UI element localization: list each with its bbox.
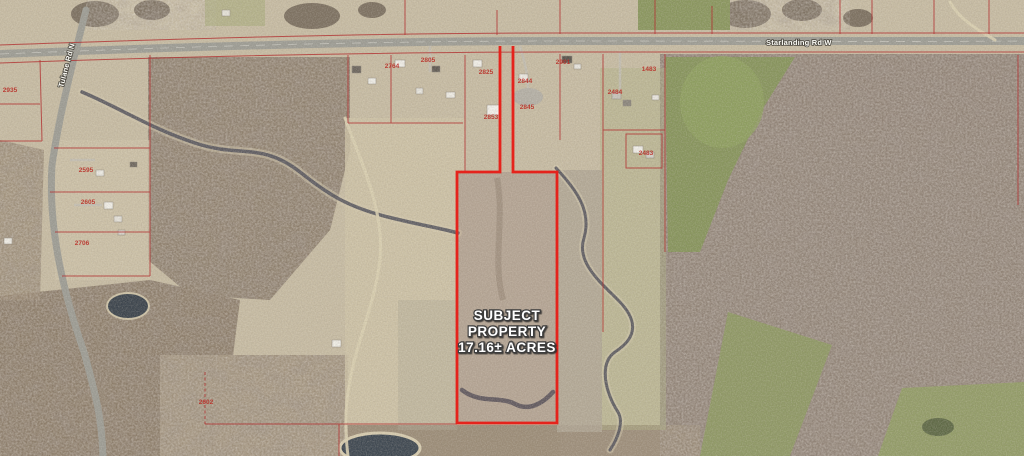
parcel-number-label: 2595 — [79, 167, 94, 174]
parcel-number-label: 2853 — [484, 114, 499, 121]
aerial-map: Starlanding Rd W Tulane Rd N SUBJECT PRO… — [0, 0, 1024, 456]
parcel-number-label: 2483 — [639, 150, 654, 157]
subject-label-line1: SUBJECT — [474, 308, 541, 323]
parcel-number-label: 2901 — [556, 59, 571, 66]
parcel-number-label: 2602 — [199, 399, 214, 406]
subject-label-line3: 17.16± ACRES — [458, 340, 556, 355]
parcel-number-label: 2805 — [421, 57, 436, 64]
parcel-number-label: 2605 — [81, 199, 96, 206]
parcel-number-label: 2764 — [385, 63, 400, 70]
parcel-number-label: 2484 — [608, 89, 623, 96]
parcel-number-label: 2845 — [520, 104, 535, 111]
parcel-number-label: 2935 — [3, 87, 18, 94]
parcel-number-label: 1483 — [642, 66, 657, 73]
parcel-number-label: 2706 — [75, 240, 90, 247]
parcel-number-label: 2844 — [518, 78, 533, 85]
subject-label-line2: PROPERTY — [468, 324, 546, 339]
parcel-number-label: 2825 — [479, 69, 494, 76]
aerial-map-screenshot: Starlanding Rd W Tulane Rd N SUBJECT PRO… — [0, 0, 1024, 456]
road-label-starlanding: Starlanding Rd W — [766, 38, 832, 47]
